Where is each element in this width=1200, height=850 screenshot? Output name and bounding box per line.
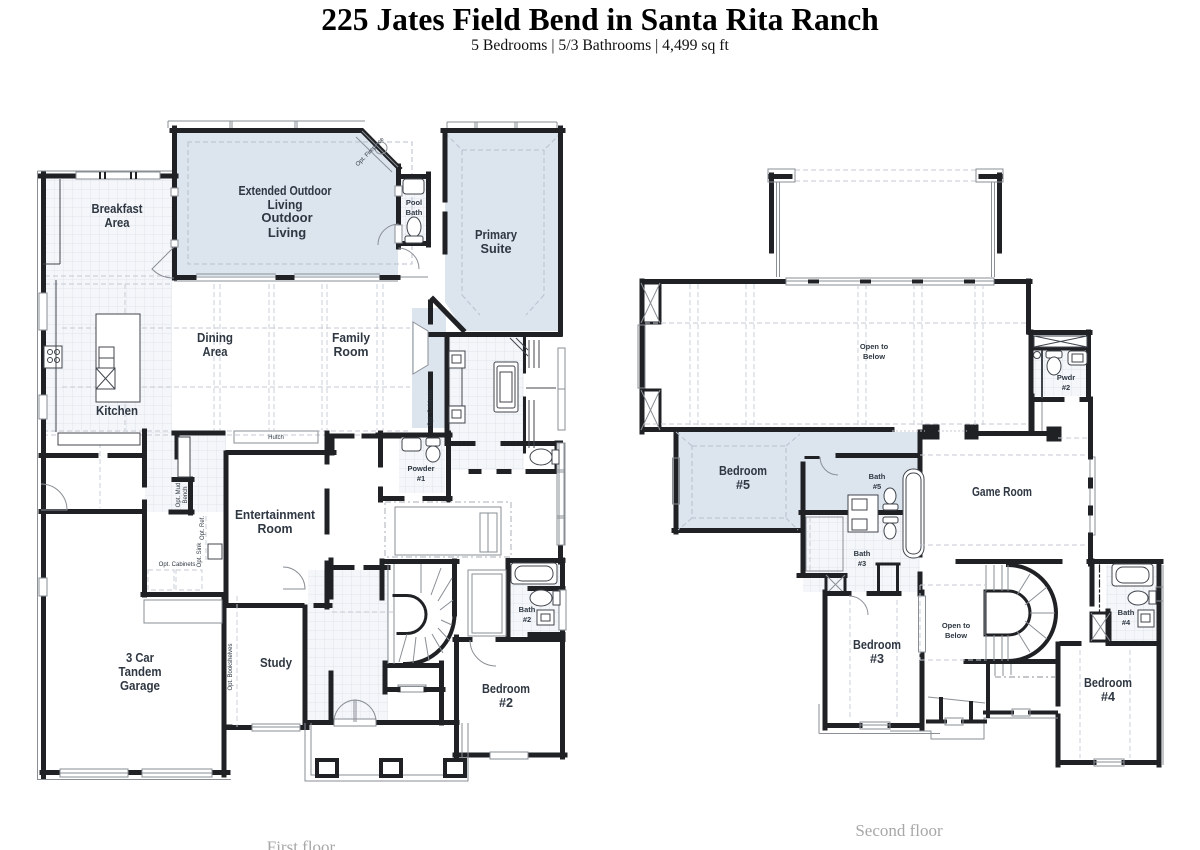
svg-text:Pwdr: Pwdr — [1057, 373, 1075, 382]
svg-text:Bedroom: Bedroom — [1084, 675, 1132, 690]
svg-text:Open to: Open to — [942, 621, 971, 630]
svg-text:Bath: Bath — [519, 605, 536, 614]
svg-text:Entertainment: Entertainment — [235, 507, 316, 522]
svg-text:#4: #4 — [1122, 618, 1131, 627]
svg-text:First floor: First floor — [267, 838, 336, 850]
svg-text:Bath: Bath — [869, 472, 886, 481]
svg-text:Room: Room — [334, 344, 369, 359]
svg-text:225 Jates Field Bend in Santa: 225 Jates Field Bend in Santa Rita Ranch — [321, 2, 879, 37]
svg-text:Below: Below — [863, 352, 885, 361]
svg-text:5 Bedrooms | 5/3 Bathrooms | 4: 5 Bedrooms | 5/3 Bathrooms | 4,499 sq ft — [471, 37, 729, 54]
svg-text:Pool: Pool — [406, 198, 422, 207]
svg-text:Extended Outdoor: Extended Outdoor — [239, 183, 332, 198]
svg-text:#5: #5 — [736, 477, 750, 492]
svg-text:Breakfast: Breakfast — [92, 201, 144, 216]
svg-text:Bath: Bath — [406, 208, 423, 217]
svg-text:Opt. Sink: Opt. Sink — [197, 542, 203, 568]
svg-text:Bath: Bath — [1118, 608, 1135, 617]
svg-text:#4: #4 — [1101, 689, 1116, 704]
svg-text:Bench: Bench — [183, 486, 189, 503]
svg-text:#5: #5 — [873, 482, 881, 491]
svg-text:Area: Area — [105, 215, 131, 230]
svg-text:Opt. Cabinets: Opt. Cabinets — [428, 390, 434, 427]
svg-text:Tandem: Tandem — [119, 664, 162, 679]
svg-text:#3: #3 — [858, 559, 866, 568]
svg-text:#2: #2 — [523, 615, 531, 624]
svg-text:Area: Area — [203, 344, 229, 359]
svg-text:Kitchen: Kitchen — [96, 403, 138, 418]
svg-text:Bedroom: Bedroom — [719, 463, 767, 478]
svg-text:#2: #2 — [499, 695, 513, 710]
svg-text:Powder: Powder — [407, 464, 434, 473]
svg-text:#3: #3 — [870, 651, 884, 666]
svg-text:Living: Living — [268, 225, 306, 240]
svg-text:Primary: Primary — [475, 227, 518, 242]
svg-text:Garage: Garage — [120, 678, 160, 693]
svg-text:3 Car: 3 Car — [126, 650, 154, 665]
svg-text:Room: Room — [258, 521, 293, 536]
svg-text:Suite: Suite — [481, 241, 512, 256]
svg-text:#1: #1 — [417, 474, 425, 483]
svg-text:Study: Study — [260, 655, 293, 670]
svg-text:Open to: Open to — [860, 342, 889, 351]
svg-text:Bath: Bath — [854, 549, 871, 558]
svg-text:Second floor: Second floor — [855, 821, 943, 840]
svg-text:Dining: Dining — [197, 330, 233, 345]
svg-text:#2: #2 — [1062, 383, 1070, 392]
svg-text:Opt. Mud: Opt. Mud — [176, 483, 182, 508]
svg-text:Bedroom: Bedroom — [482, 681, 530, 696]
svg-text:Outdoor: Outdoor — [261, 210, 312, 225]
svg-text:Hutch: Hutch — [268, 435, 284, 441]
svg-text:Opt. Ref.: Opt. Ref. — [200, 516, 206, 540]
svg-text:Bedroom: Bedroom — [853, 637, 901, 652]
svg-text:Game Room: Game Room — [972, 484, 1032, 499]
svg-text:Opt. Cabinets: Opt. Cabinets — [159, 562, 196, 568]
svg-text:Opt. Bookshelves: Opt. Bookshelves — [228, 643, 234, 690]
svg-text:Living: Living — [268, 197, 303, 212]
svg-text:Family: Family — [332, 330, 371, 345]
svg-text:Below: Below — [945, 631, 967, 640]
